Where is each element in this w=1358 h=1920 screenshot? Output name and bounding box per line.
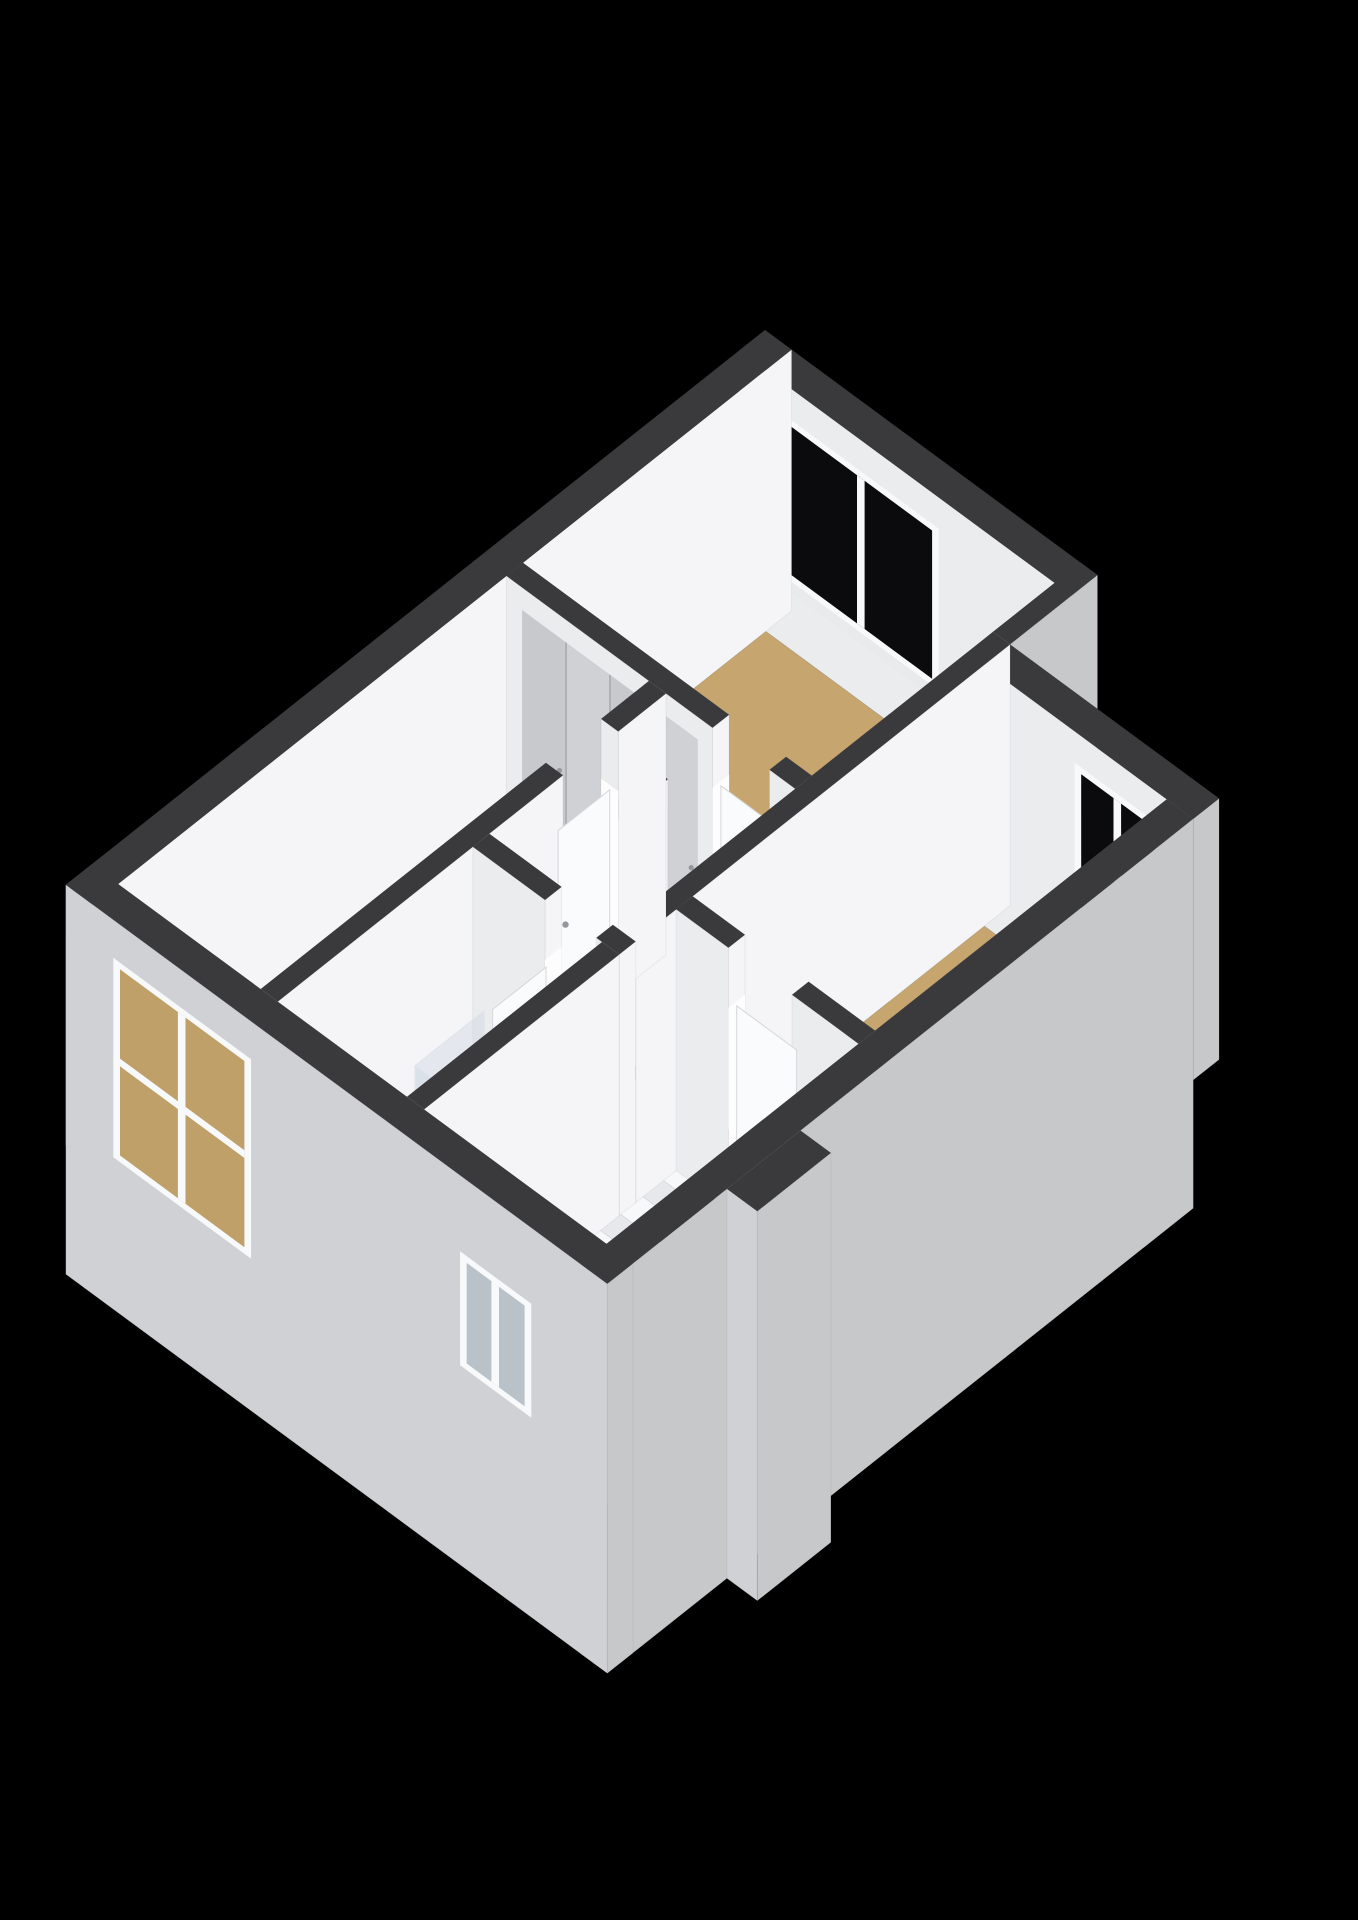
floorplan-stage	[0, 0, 1358, 1920]
wall-bathroom-north-face-u	[619, 942, 636, 1216]
facade-ne-window-mullion	[857, 475, 865, 629]
facade-sw-window-mullion	[491, 1281, 499, 1387]
floorplan-3d-render	[0, 0, 1358, 1920]
facade-se-bump-face-u	[757, 1153, 831, 1601]
facade-sw-face-u	[607, 1263, 633, 1673]
wall-bedroom-top-south-closet-handle	[689, 865, 694, 870]
facade-ne-setback-face-u	[1193, 798, 1219, 1080]
facade-se-bump-face-v	[727, 1189, 757, 1601]
wall-bedroom-left-east-door-handle	[562, 921, 568, 927]
